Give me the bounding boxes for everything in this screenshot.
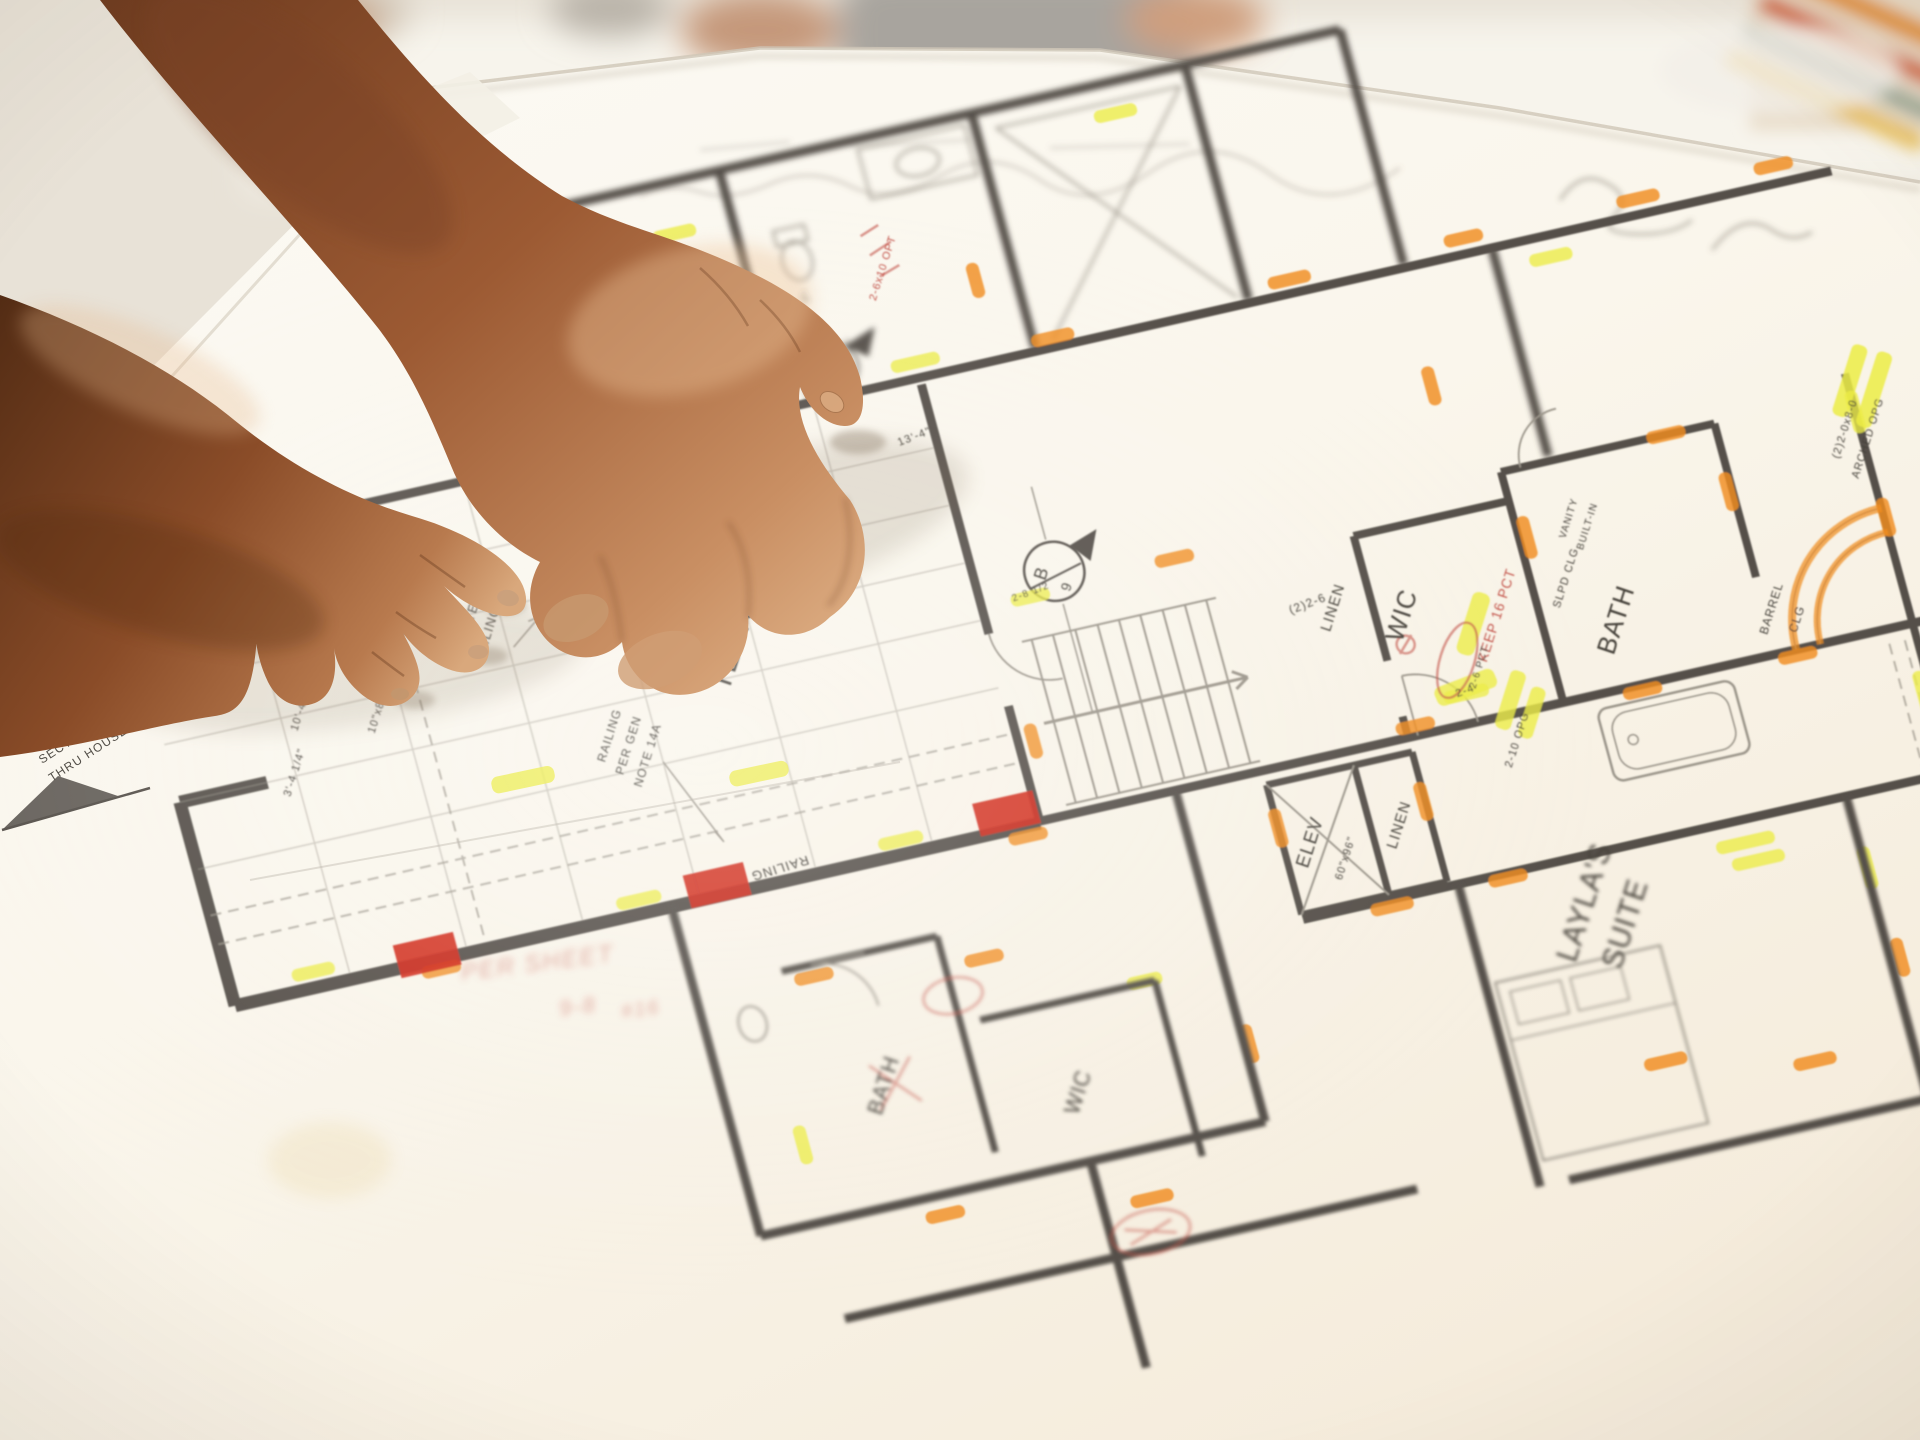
vignette (0, 0, 1920, 1440)
photo-scene: 5'-2" B 9 (0, 0, 1920, 1440)
photo-canvas: 5'-2" B 9 (0, 0, 1920, 1440)
